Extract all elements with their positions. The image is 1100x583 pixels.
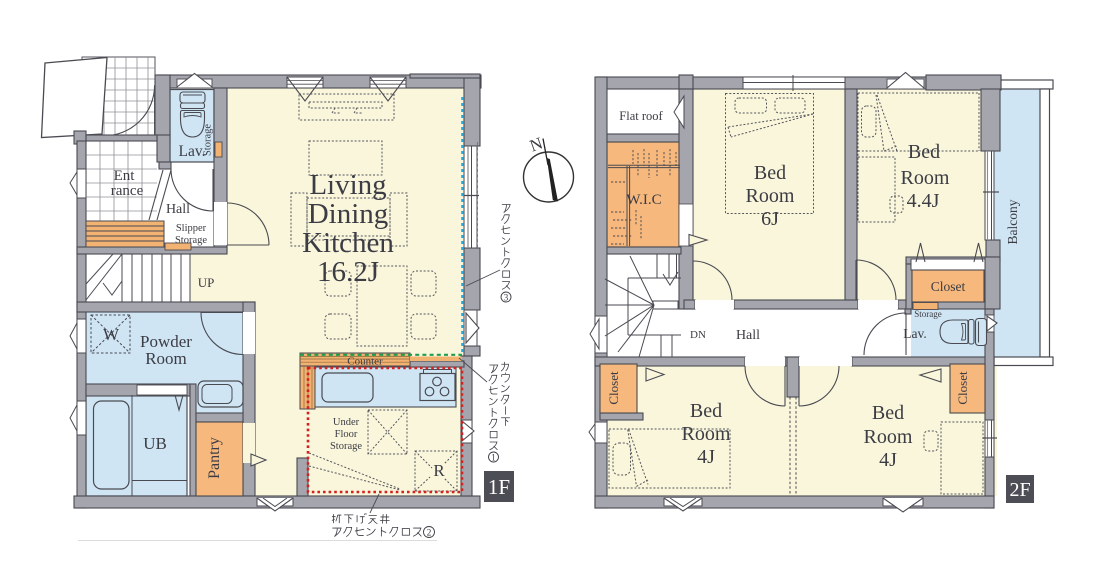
svg-text:Closet: Closet (955, 371, 970, 405)
svg-text:UP: UP (198, 275, 215, 290)
svg-text:Storage: Storage (330, 441, 362, 452)
svg-text:Room: Room (746, 185, 795, 207)
svg-text:Bed: Bed (872, 402, 904, 424)
svg-text:W: W (103, 325, 120, 344)
svg-text:Storage: Storage (175, 235, 207, 246)
svg-text:Living: Living (309, 169, 386, 201)
svg-text:Room: Room (145, 349, 187, 368)
svg-text:Slipper: Slipper (176, 223, 207, 234)
svg-text:Hall: Hall (166, 202, 190, 217)
svg-text:2F: 2F (1009, 479, 1030, 501)
svg-text:Room: Room (901, 167, 950, 189)
svg-text:4.4J: 4.4J (907, 190, 940, 212)
svg-text:Room: Room (864, 426, 913, 448)
svg-text:Storage: Storage (203, 124, 214, 156)
svg-text:Kitchen: Kitchen (302, 227, 394, 259)
svg-text:Storage: Storage (914, 309, 942, 319)
svg-text:Balcony: Balcony (1005, 199, 1020, 244)
svg-text:Hall: Hall (736, 328, 760, 343)
svg-text:R: R (433, 461, 445, 480)
svg-text:6J: 6J (761, 208, 779, 230)
svg-text:4J: 4J (879, 449, 897, 471)
svg-text:Under: Under (333, 417, 360, 428)
svg-text:3: 3 (504, 293, 509, 303)
svg-text:W.I.C: W.I.C (626, 192, 661, 208)
svg-text:Lav.: Lav. (179, 143, 206, 160)
svg-text:Lav.: Lav. (903, 326, 927, 341)
svg-text:Flat roof: Flat roof (619, 109, 663, 123)
svg-text:DN: DN (690, 329, 706, 341)
svg-text:1: 1 (491, 453, 496, 463)
svg-text:UB: UB (143, 434, 167, 453)
svg-text:Bed: Bed (908, 141, 940, 163)
svg-text:rance: rance (111, 183, 144, 199)
svg-text:Room: Room (682, 423, 731, 445)
svg-text:Counter: Counter (347, 356, 383, 368)
svg-text:Bed: Bed (690, 400, 722, 422)
svg-text:Floor: Floor (335, 429, 358, 440)
svg-text:Closet: Closet (606, 371, 621, 405)
svg-text:1F: 1F (488, 475, 510, 499)
svg-text:16.2J: 16.2J (317, 256, 379, 288)
svg-text:Bed: Bed (754, 162, 786, 184)
svg-text:Ent: Ent (114, 168, 136, 184)
svg-text:4J: 4J (697, 446, 715, 468)
svg-text:2: 2 (427, 529, 432, 539)
svg-text:Pantry: Pantry (206, 437, 223, 479)
svg-text:Dining: Dining (308, 198, 389, 230)
svg-text:Closet: Closet (931, 279, 966, 294)
